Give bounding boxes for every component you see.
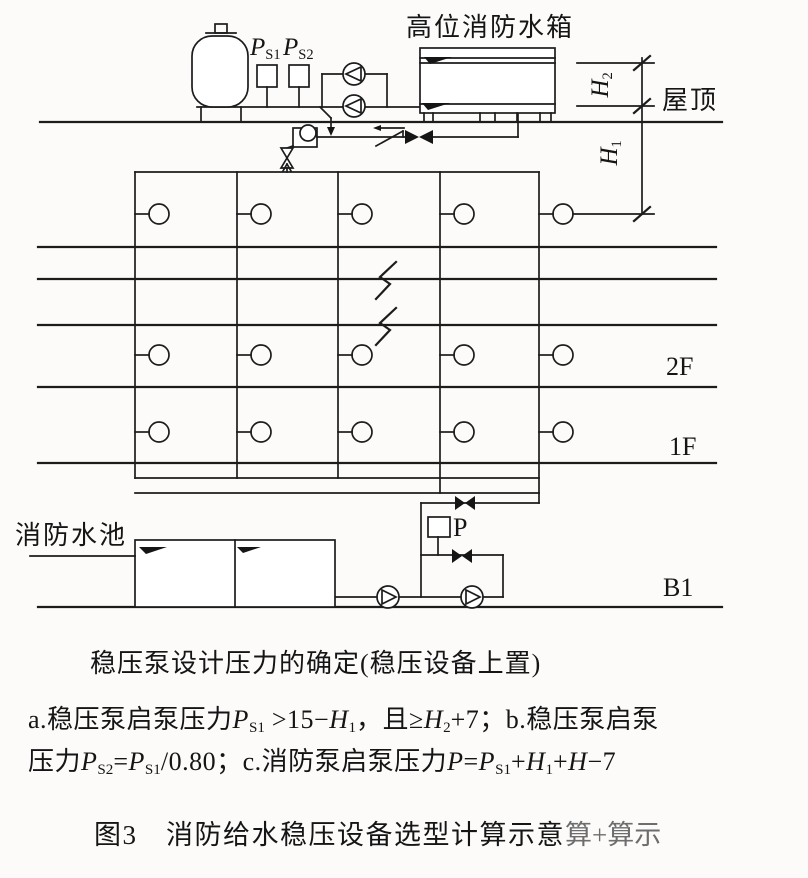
roof-label: 屋顶 <box>662 86 718 116</box>
pump-icon <box>343 63 365 85</box>
pressure-switch-ps1 <box>257 65 277 107</box>
sprinkler-head-icon <box>539 345 573 365</box>
sprinkler-head-icon <box>539 204 573 224</box>
sprinkler-head-icon <box>440 345 474 365</box>
valve-icon <box>455 496 475 510</box>
sprinkler-head-icon <box>440 422 474 442</box>
ps1-label: PS1 <box>250 34 281 64</box>
floor-label-b1: B1 <box>663 573 693 603</box>
figure-caption-text: 图3 消防给水稳压设备选型计算示意 <box>94 820 565 850</box>
sprinkler-head-icon <box>237 345 271 365</box>
flow-meter-icon <box>293 125 317 147</box>
check-valve-icon <box>376 131 403 146</box>
formula-line-a: a.稳压泵启泵压力PS1 >15−H1，且≥H2+7；b.稳压泵启泵 <box>28 705 659 738</box>
gate-valve-icon <box>405 130 433 144</box>
pressure-switch-ps2 <box>289 65 309 107</box>
stop-valve-icon <box>281 146 293 172</box>
sprinkler-head-icon <box>440 204 474 224</box>
h2-dimension-label: H2 <box>587 72 617 97</box>
pressure-switch-icon <box>428 517 450 537</box>
pipe-break-icon <box>376 262 396 345</box>
h1-dimension-label: H1 <box>596 140 626 165</box>
floor-label-2f: 2F <box>666 352 693 382</box>
ps2-label: PS2 <box>283 34 314 64</box>
sprinkler-head-icon <box>338 345 372 365</box>
sprinkler-head-icon <box>338 422 372 442</box>
sprinkler-head-icon <box>135 422 169 442</box>
check-valve-line <box>317 114 518 146</box>
pressure-switch-p-label: P <box>453 513 467 543</box>
formula-line-b: 压力PS2=PS1/0.80；c.消防泵启泵压力P=PS1+H1+H−7 <box>28 747 616 780</box>
stabilization-pump-group <box>322 63 387 117</box>
pump-icon <box>377 586 399 608</box>
sprinkler-head-icon <box>135 345 169 365</box>
pump-icon <box>461 586 483 608</box>
flow-arrow-left-icon <box>373 125 404 131</box>
elevated-water-tank <box>420 48 555 122</box>
sprinkler-head-icon <box>237 204 271 224</box>
sprinkler-head-icon <box>539 422 573 442</box>
figure-caption: 图3 消防给水稳压设备选型计算示意算+算示 <box>94 820 661 851</box>
floor-label-1f: 1F <box>669 432 696 462</box>
building-grid <box>135 172 539 503</box>
notes-heading: 稳压泵设计压力的确定(稳压设备上置) <box>90 649 541 679</box>
elevated-tank-label: 高位消防水箱 <box>406 13 574 43</box>
sprinkler-head-icon <box>237 422 271 442</box>
floor-lines <box>38 122 722 607</box>
valve-icon <box>452 549 472 563</box>
bottom-pump-assembly <box>313 496 539 608</box>
figure-caption-ghost-text: 算+算示 <box>565 820 661 850</box>
pool-label: 消防水池 <box>15 521 127 551</box>
sprinkler-grid <box>135 204 573 442</box>
schematic-figure: 高位消防水箱 屋顶 PS1 PS2 H2 H1 2F 1F B1 消防水池 P … <box>0 0 808 878</box>
sprinkler-head-icon <box>338 204 372 224</box>
sprinkler-head-icon <box>135 204 169 224</box>
pump-icon <box>343 95 365 117</box>
